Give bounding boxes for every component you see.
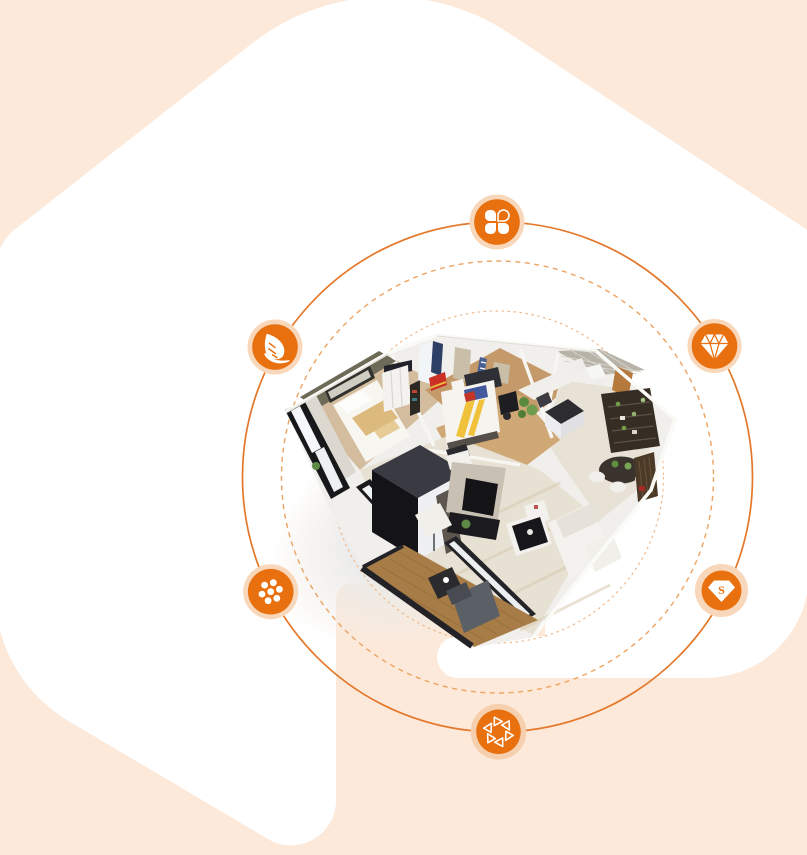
svg-text:S: S (718, 583, 725, 597)
